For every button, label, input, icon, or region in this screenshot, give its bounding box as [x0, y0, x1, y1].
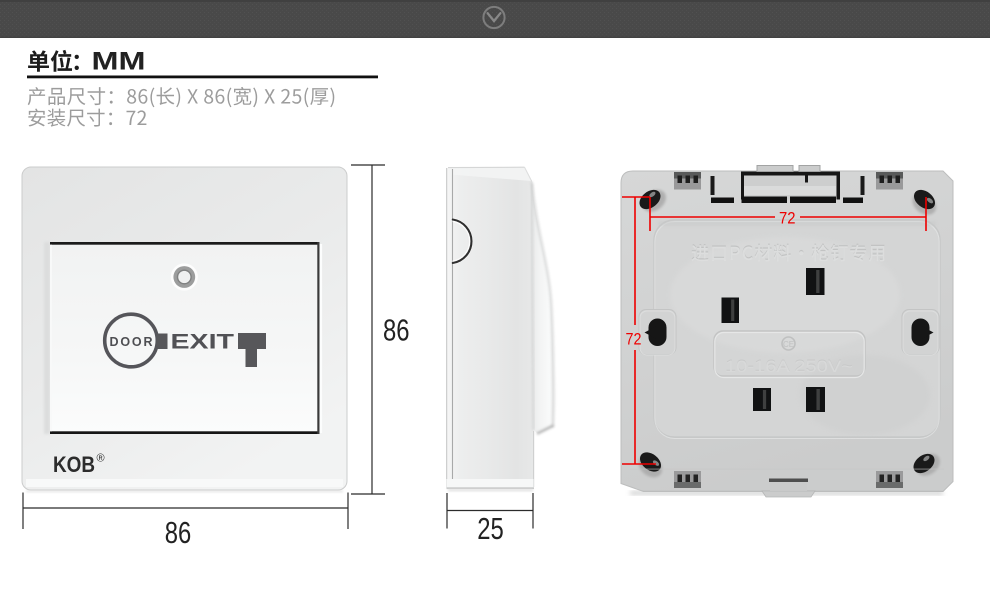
svg-text:86: 86	[165, 515, 192, 550]
svg-text:KOB: KOB	[53, 452, 95, 477]
svg-text:DOOR: DOOR	[110, 335, 153, 349]
svg-text:CE: CE	[783, 340, 794, 349]
svg-text:®: ®	[97, 453, 105, 465]
svg-text:EXIT: EXIT	[171, 330, 235, 354]
svg-text:72: 72	[779, 209, 796, 228]
svg-text:25: 25	[477, 511, 504, 546]
svg-text:MM: MM	[92, 48, 146, 76]
svg-text:86: 86	[383, 313, 410, 348]
svg-text:10-16A 250V~: 10-16A 250V~	[725, 357, 853, 376]
svg-text:72: 72	[626, 330, 642, 349]
